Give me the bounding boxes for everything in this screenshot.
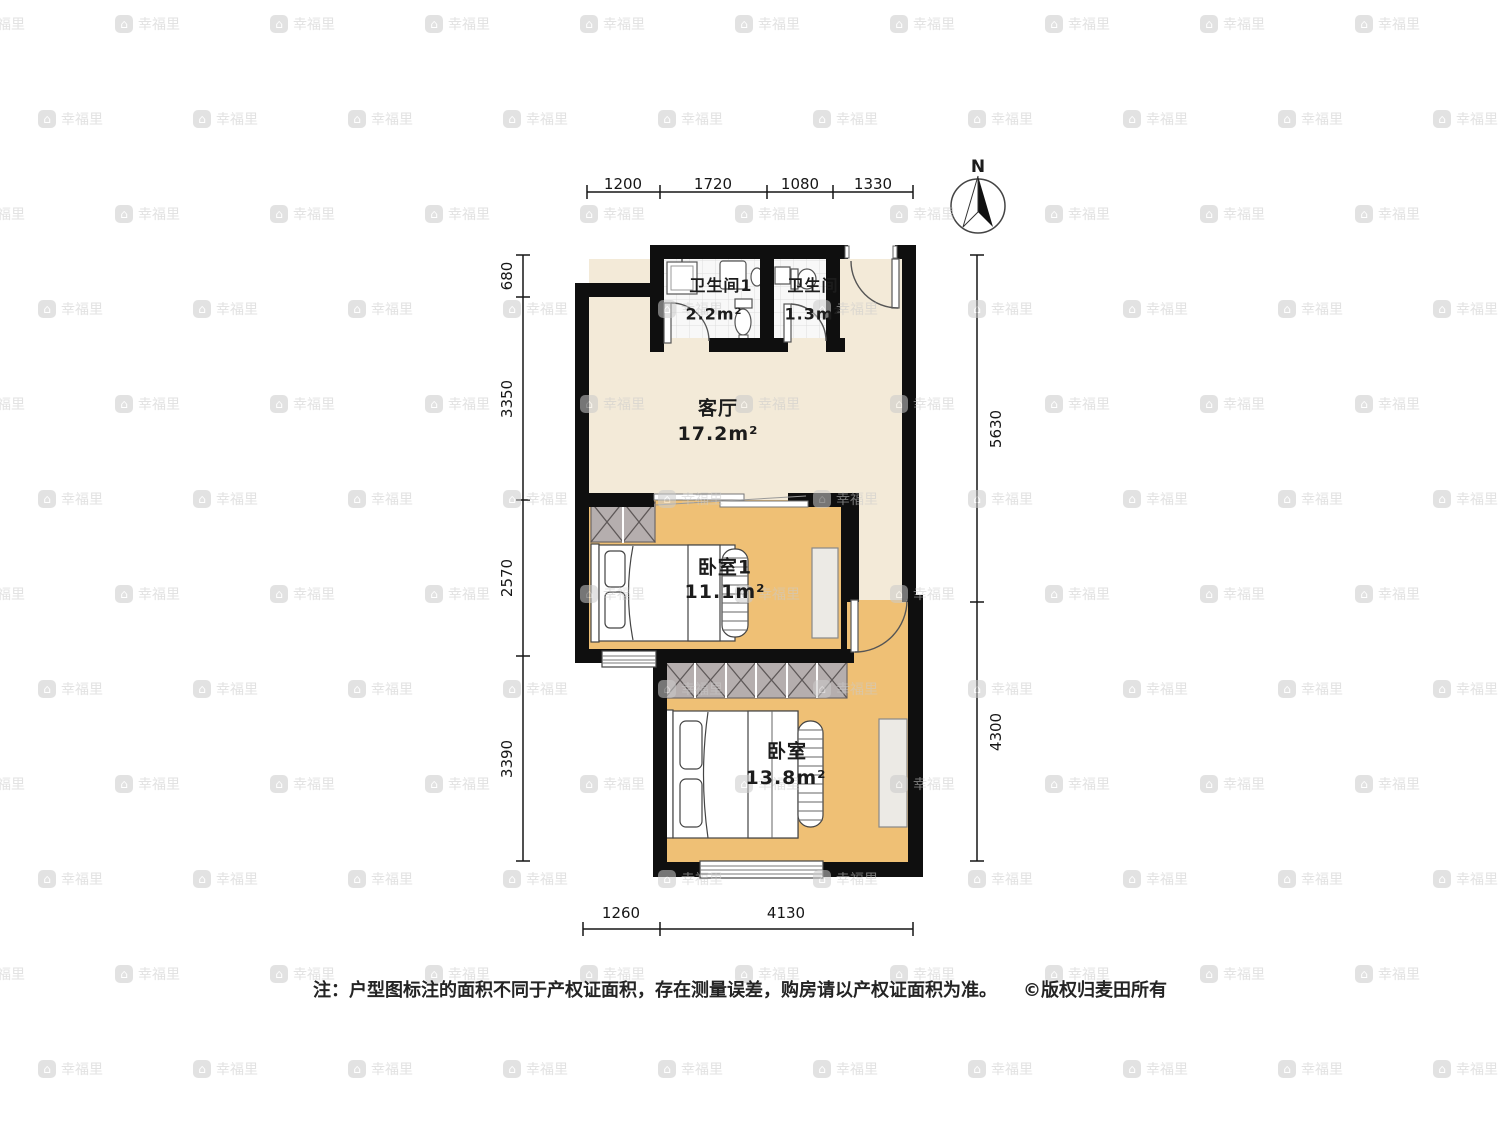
floor-plan: ⌂幸福里⌂幸福里⌂幸福里⌂幸福里⌂幸福里⌂幸福里⌂幸福里⌂幸福里⌂幸福里⌂幸福里… <box>0 0 1500 1125</box>
entry-door-frame <box>845 246 897 258</box>
dim-top-3: 1080 <box>781 175 819 193</box>
disclaimer-row: 注：户型图标注的面积不同于产权证面积，存在测量误差，购房请以产权证面积为准。©版… <box>313 976 1167 1002</box>
dim-top-1: 1200 <box>604 175 642 193</box>
dim-right-1: 5630 <box>987 410 1005 448</box>
wardrobe-bedroom <box>665 662 847 698</box>
room-area-bath1: 2.2m² <box>685 305 742 324</box>
dim-left-4: 3390 <box>498 740 516 778</box>
north-compass-icon <box>951 176 1005 233</box>
copyright-label: ©版权归麦田所有 <box>1023 980 1167 1001</box>
room-area-bedroom1: 11.1m² <box>685 581 766 603</box>
dim-bottom-2: 4130 <box>767 904 805 922</box>
dim-left-2: 3350 <box>498 380 516 418</box>
dim-left-1: 680 <box>498 262 516 291</box>
room-label-bath1: 卫生间1 <box>689 272 752 296</box>
wardrobe-bedroom1 <box>591 502 655 542</box>
room-area-living: 17.2m² <box>678 423 759 445</box>
window-bedroom <box>700 861 823 878</box>
disclaimer-note: 注：户型图标注的面积不同于产权证面积，存在测量误差，购房请以产权证面积为准。 <box>313 980 997 1001</box>
room-area-bath2: 1.3m² <box>784 305 841 324</box>
room-label-living: 客厅 <box>698 394 738 421</box>
window-bedroom1 <box>602 651 656 667</box>
room-label-bedroom: 卧室 <box>767 737 807 764</box>
cabinet-bedroom <box>879 719 907 827</box>
cabinet-bedroom1 <box>812 548 838 638</box>
dim-right-2: 4300 <box>987 713 1005 751</box>
compass-north-label: N <box>971 157 985 177</box>
dim-top-2: 1720 <box>694 175 732 193</box>
room-label-bedroom1: 卧室1 <box>698 553 752 580</box>
dim-top-4: 1330 <box>854 175 892 193</box>
dim-left-3: 2570 <box>498 559 516 597</box>
room-label-bath2: 卫生间 <box>787 272 838 296</box>
dim-bottom-1: 1260 <box>602 904 640 922</box>
room-area-bedroom: 13.8m² <box>746 767 827 789</box>
